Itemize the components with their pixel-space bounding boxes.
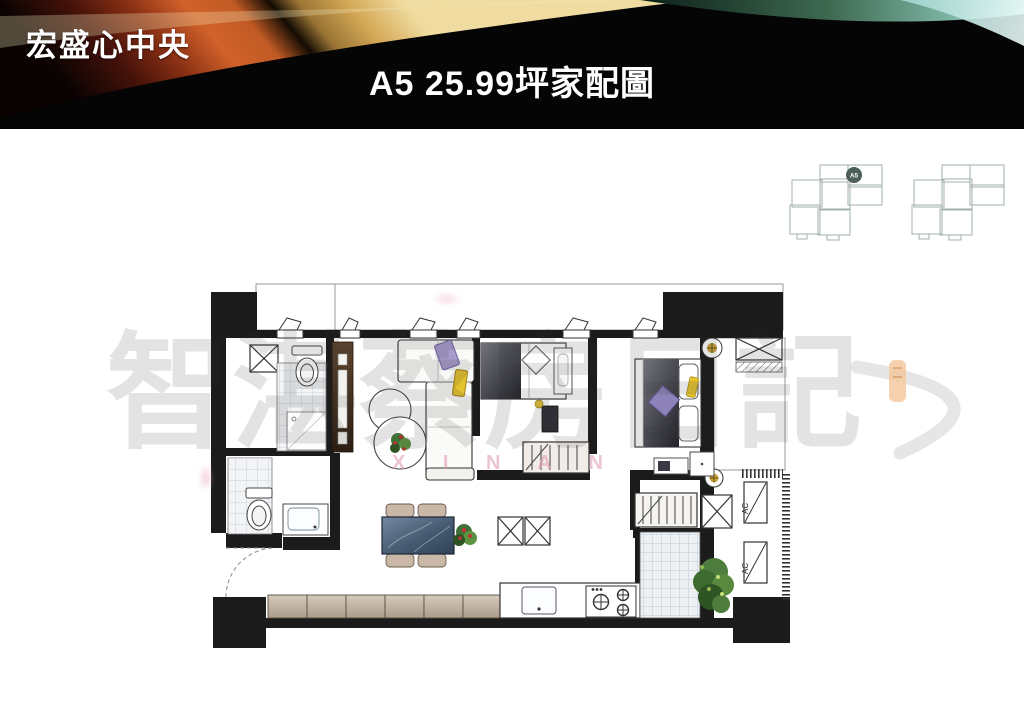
chair: [386, 554, 414, 567]
watermark-flourish: [845, 355, 1015, 465]
media-cabinet: [332, 342, 353, 452]
slide-title: A5 25.99坪家配圖: [0, 56, 1024, 105]
duct-x-icon: [702, 495, 732, 528]
louver-hatch: [736, 362, 782, 372]
plant-icon: [453, 524, 477, 546]
toilet-icon: [246, 488, 272, 530]
chair: [418, 554, 446, 567]
bathroom-1: [277, 346, 326, 451]
duct-x-icon: [736, 338, 782, 360]
single-bed: [481, 343, 566, 399]
wardrobe-hangers: [635, 493, 697, 527]
coffee-tables: [369, 389, 426, 469]
dining-table: [382, 517, 454, 554]
dresser: [654, 452, 714, 476]
drip-edge: [782, 472, 790, 600]
floor-plan: AC AC: [202, 282, 792, 662]
living-room: [369, 340, 474, 480]
sink-icon: [522, 587, 556, 614]
bedroom-2: [481, 343, 589, 473]
unit-badge-label: A5: [850, 173, 859, 180]
entry-door-arc: [226, 548, 275, 597]
key-plans: A5: [783, 160, 1005, 245]
shower-pan-icon: [287, 412, 326, 450]
chair: [386, 504, 414, 517]
balcony: [640, 532, 734, 618]
kitchen: [500, 583, 640, 618]
drip-edge: [740, 469, 783, 478]
bathroom-2: [228, 458, 328, 535]
ac-unit-1: AC: [741, 482, 767, 523]
washbasin-icon: [283, 504, 328, 535]
pillow: [679, 406, 698, 441]
unit-badge: A5: [846, 167, 862, 183]
ac-unit-2: AC: [741, 542, 767, 583]
watermark-seal: [889, 360, 906, 402]
chair: [418, 504, 446, 517]
header-bar: 宏盛心中央 A5 25.99坪家配圖: [0, 0, 1024, 129]
nightstand: [542, 406, 558, 432]
bottom-cabinets: [268, 595, 502, 618]
duct-x-icon: [498, 517, 523, 545]
duct-x-icon: [525, 517, 550, 545]
double-bed: [635, 359, 701, 447]
ac-label: AC: [741, 503, 750, 514]
lamp-icon: [535, 400, 543, 408]
stove-icon: [586, 586, 636, 617]
dining-area: [382, 504, 477, 567]
keyplan-right: [912, 165, 1004, 240]
closet-hangers: [523, 442, 589, 473]
keyplan-outline: [790, 165, 882, 240]
duct-x-icon: [250, 345, 278, 372]
ac-label: AC: [741, 563, 750, 574]
bedside-lamp-icon: [702, 338, 722, 358]
headboard-desk: [554, 348, 572, 394]
